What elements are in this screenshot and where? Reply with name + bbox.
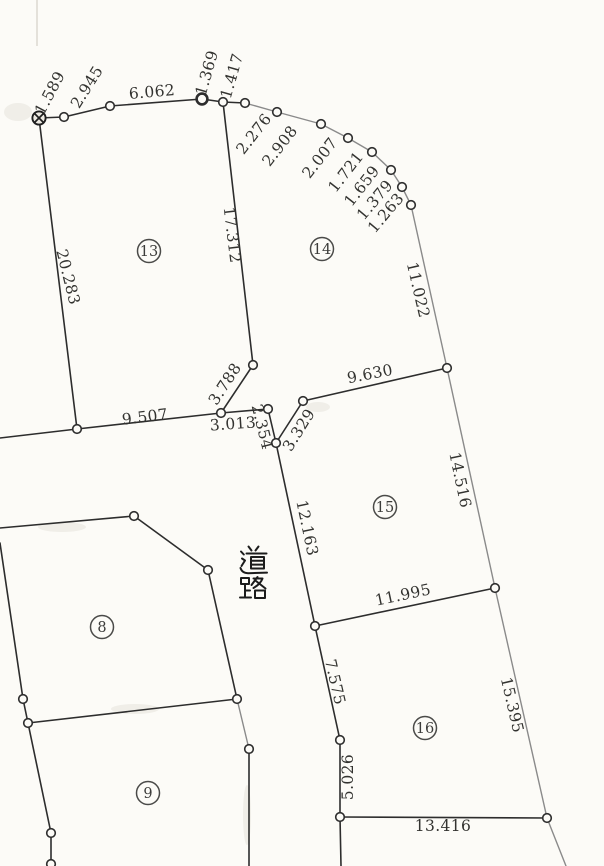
vertex-point	[47, 829, 56, 838]
measurement-label: 1.417	[217, 51, 247, 101]
vertex-point	[19, 695, 28, 704]
boundary-line	[64, 106, 110, 117]
measurement-label: 15.395	[497, 675, 527, 734]
svg-text:8: 8	[97, 620, 106, 636]
vertex-point	[60, 113, 69, 122]
svg-text:13: 13	[140, 244, 158, 260]
measurement-label: 17.312	[220, 206, 245, 264]
vertex-point	[368, 148, 377, 157]
measurement-label: 14.516	[445, 450, 474, 509]
plat-svg: 1.5892.9456.0621.3691.4172.2762.9082.007…	[0, 0, 604, 866]
parcel-number-13: 13	[138, 240, 161, 263]
cadastral-map-sheet: 1.5892.9456.0621.3691.4172.2762.9082.007…	[0, 0, 604, 866]
vertex-point	[249, 361, 258, 370]
parcel-number-16: 16	[414, 717, 437, 740]
vertex-point	[344, 134, 353, 143]
boundary-line	[547, 818, 566, 866]
vertex-point	[387, 166, 396, 175]
road-label	[240, 547, 267, 599]
boundary-line	[208, 570, 237, 699]
vertex-point	[233, 695, 242, 704]
vertex-point	[336, 736, 345, 745]
vertex-point	[47, 860, 56, 866]
road-label-char	[241, 547, 268, 574]
vertex-point	[299, 397, 308, 406]
measurement-label: 3.788	[205, 360, 245, 409]
boundary-line	[0, 543, 23, 699]
svg-text:9: 9	[143, 786, 152, 802]
measurement-label: 11.022	[403, 260, 433, 319]
measurement-label: 6.062	[128, 81, 176, 103]
vertex-point	[73, 425, 82, 434]
vertex-point	[241, 99, 250, 108]
measurement-label: 2.945	[67, 63, 107, 112]
boundary-line	[237, 699, 249, 749]
boundary-line	[340, 817, 341, 866]
vertex-point	[311, 622, 320, 631]
vertex-point	[106, 102, 115, 111]
vertex-point	[491, 584, 500, 593]
measurement-label: 3.013	[209, 413, 257, 434]
boundary-line	[277, 112, 321, 124]
svg-text:15: 15	[376, 500, 394, 516]
parcel-number-9: 9	[137, 782, 160, 805]
boundary-line	[28, 699, 237, 723]
svg-text:16: 16	[416, 721, 434, 737]
measurement-label: 12.163	[292, 498, 321, 557]
vertex-point	[24, 719, 33, 728]
vertex-point	[317, 120, 326, 129]
vertex-point	[407, 201, 416, 210]
parcel-number-15: 15	[374, 496, 397, 519]
measurement-label: 13.416	[415, 817, 472, 835]
measurement-label: 7.575	[321, 657, 349, 706]
svg-text:14: 14	[313, 242, 331, 258]
boundary-line	[28, 723, 51, 833]
vertex-point	[398, 183, 407, 192]
vertex-point	[130, 512, 139, 521]
vertex-point	[336, 813, 345, 822]
measurement-label: 11.995	[373, 580, 432, 609]
boundary-line	[0, 429, 77, 438]
measurement-label: 5.026	[339, 754, 357, 800]
measurement-label: 9.507	[121, 405, 169, 429]
road-label-char	[240, 577, 266, 598]
paper-smudge	[4, 103, 32, 121]
vertex-point	[443, 364, 452, 373]
parcel-number-14: 14	[311, 238, 334, 261]
vertex-point	[204, 566, 213, 575]
measurement-label: 20.283	[52, 247, 83, 306]
boundary-line	[134, 516, 208, 570]
measurement-label: 1.589	[31, 68, 69, 117]
vertex-point	[543, 814, 552, 823]
measurement-label: 9.630	[346, 361, 395, 388]
vertex-point	[245, 745, 254, 754]
vertex-point	[273, 108, 282, 117]
parcel-number-8: 8	[91, 616, 114, 639]
